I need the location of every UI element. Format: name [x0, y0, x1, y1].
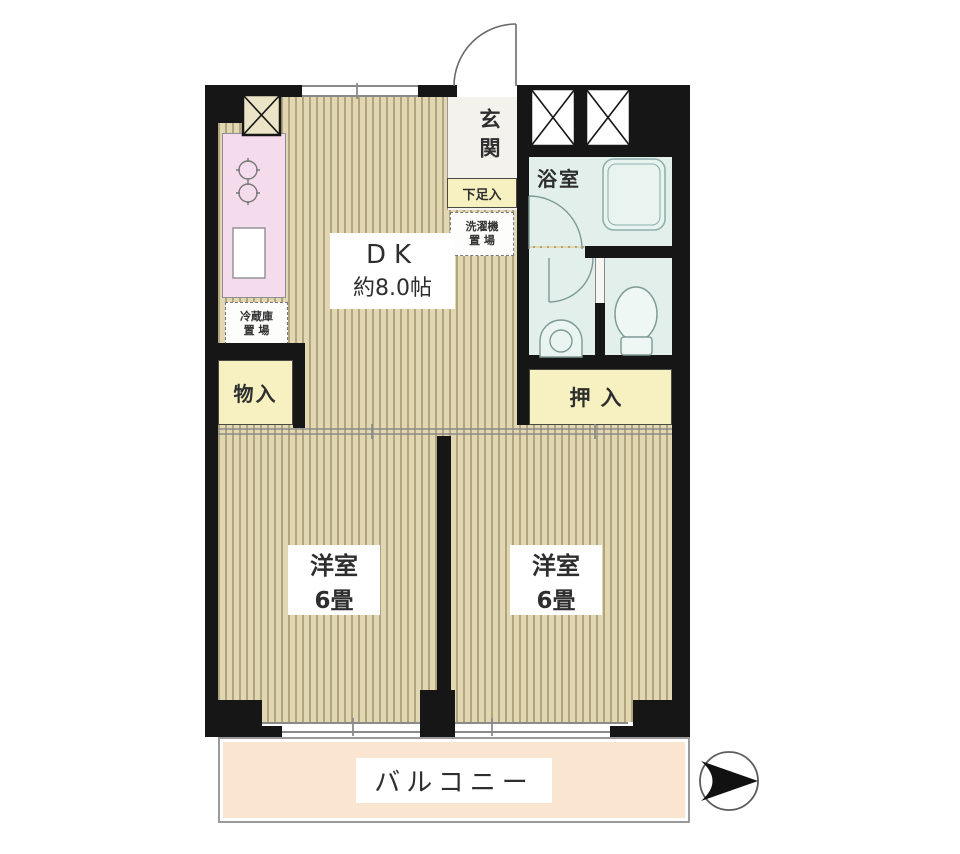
x-box-pillar: [243, 95, 280, 135]
sliding-door-line: [218, 424, 672, 439]
stove-burners-icon: [236, 158, 260, 205]
bathroom-door: [529, 196, 582, 249]
bathtub-icon: [603, 159, 665, 230]
washroom-door: [549, 258, 593, 302]
window-ticks: [353, 83, 492, 736]
toilet-icon: [615, 287, 657, 355]
x-box-shaft-1: [531, 89, 575, 146]
entrance-door: [454, 24, 516, 86]
x-box-shaft-2: [586, 89, 630, 146]
floor-plan: バルコニー 玄関 下足入 洗濯機 置 場 冷蔵庫 置 場 浴室 物入 押入 DK…: [0, 0, 960, 854]
washbasin-icon: [540, 320, 582, 357]
compass-arrow-icon: [700, 752, 758, 810]
fixtures-overlay: [0, 0, 960, 854]
kitchen-sink: [233, 228, 265, 278]
